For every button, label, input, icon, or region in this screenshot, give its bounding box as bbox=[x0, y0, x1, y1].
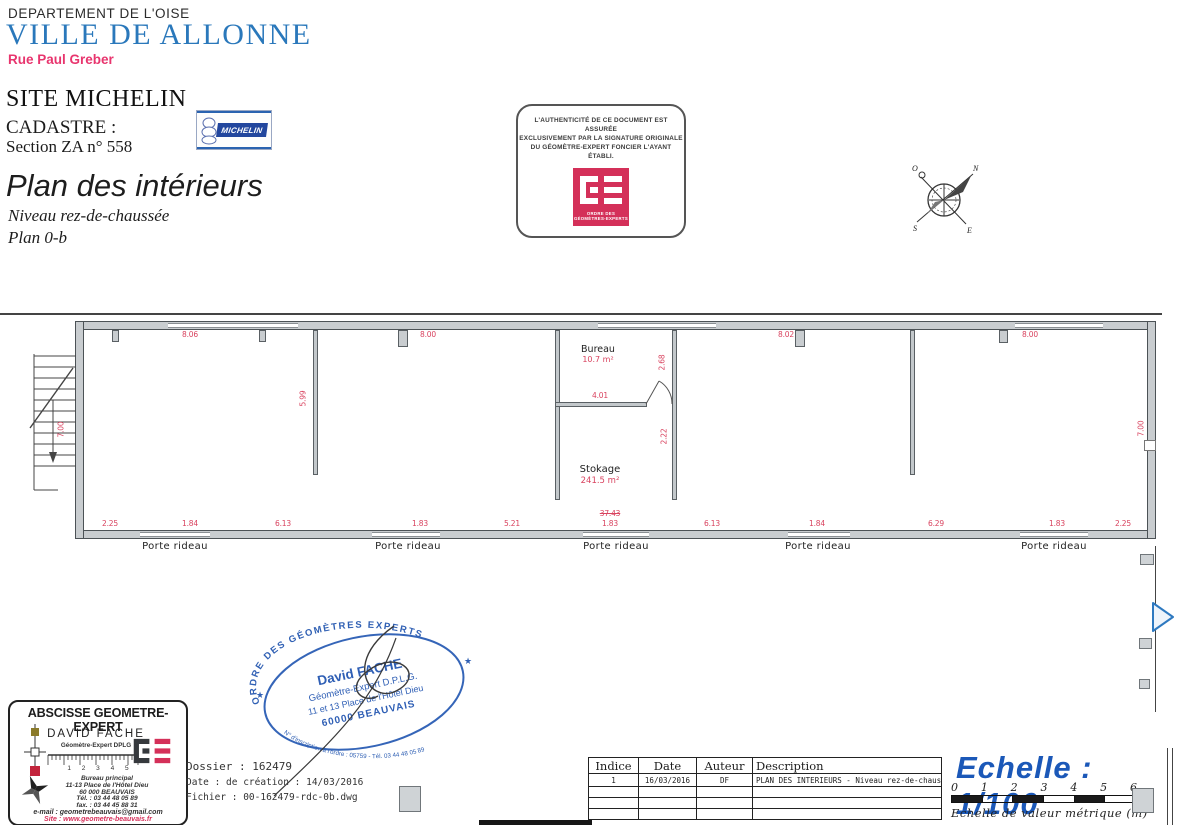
porte-rideau-label: Porte rideau bbox=[576, 541, 656, 552]
col-date: Date bbox=[639, 758, 697, 774]
room-name-bureau: Bureau bbox=[568, 344, 628, 355]
top-wall-opening bbox=[168, 323, 298, 328]
scale-tick: 3 bbox=[1040, 781, 1047, 794]
north-arrow-marker-icon bbox=[1150, 600, 1176, 634]
svg-text:N° d'inscription à l'ordre : 0: N° d'inscription à l'ordre : 05759 - Tél… bbox=[282, 729, 426, 760]
revision-indice: 1 bbox=[589, 774, 639, 787]
staircase-icon bbox=[18, 338, 80, 503]
scan-artifact-bar bbox=[479, 820, 592, 825]
abscisse-email: e-mail : geometrebeauvais@gmail.com bbox=[10, 809, 186, 816]
page-subtitle: Niveau rez-de-chaussée bbox=[8, 206, 169, 226]
dimension-label: 1.83 bbox=[1040, 519, 1074, 528]
dimension-label: 2.22 bbox=[660, 420, 669, 454]
revision-auteur: DF bbox=[697, 774, 753, 787]
bottom-wall-opening bbox=[140, 532, 210, 537]
dossier-number: Dossier : 162479 bbox=[186, 760, 363, 773]
scale-tick: 0 bbox=[951, 781, 958, 794]
oge-caption-line2: GÉOMÈTRES-EXPERTS bbox=[573, 216, 629, 221]
title-block-border bbox=[1167, 748, 1168, 825]
dimension-total-label: 37.43 bbox=[593, 509, 627, 518]
page-title: Plan des intérieurs bbox=[6, 168, 263, 204]
scale-bar bbox=[951, 795, 1137, 803]
dimension-label: 6.29 bbox=[919, 519, 953, 528]
abscisse-name: DAVID FACHE bbox=[46, 728, 146, 740]
bureau-partition-wall bbox=[555, 402, 647, 407]
stamp-arc-bottom-text: N° d'inscription à l'ordre : 05759 - Tél… bbox=[282, 729, 426, 760]
scale-tick: 2 bbox=[1011, 781, 1018, 794]
dimension-label: 6.13 bbox=[695, 519, 729, 528]
revision-table: Indice Date Auteur Description 1 16/03/2… bbox=[588, 757, 942, 820]
dimension-label: 2.68 bbox=[658, 346, 667, 380]
stamp-star-right: ★ bbox=[464, 656, 472, 666]
dimension-label: 8.06 bbox=[173, 330, 207, 339]
file-info-block: Dossier : 162479 Date : de création : 14… bbox=[186, 760, 363, 807]
michelin-wordmark: MICHELIN bbox=[216, 123, 268, 137]
revision-empty-row bbox=[589, 809, 942, 820]
oge-monogram-icon bbox=[578, 174, 624, 206]
plan-sheet: DEPARTEMENT DE L'OISE VILLE DE ALLONNE R… bbox=[0, 0, 1181, 825]
abscisse-crosshair-icon bbox=[22, 722, 48, 778]
bottom-wall-opening bbox=[1020, 532, 1088, 537]
ordre-geometres-experts-logo: ORDRE DES GÉOMÈTRES-EXPERTS bbox=[573, 168, 629, 226]
plan-reference: Plan 0-b bbox=[8, 228, 67, 248]
right-wall-notch bbox=[1144, 440, 1156, 451]
compass-north-label: N bbox=[972, 164, 979, 173]
plan-top-rule bbox=[0, 313, 1162, 315]
revision-empty-row bbox=[589, 787, 942, 798]
abscisse-ruler-numbers: 1 2 3 4 5 bbox=[58, 765, 138, 772]
compass-west-label: O bbox=[912, 164, 918, 173]
stamp-placeholder-box bbox=[399, 786, 421, 812]
dimension-label: 7.00 bbox=[57, 413, 66, 447]
partition-wall bbox=[555, 330, 560, 500]
partition-wall bbox=[910, 330, 915, 475]
dimension-label: 8.02 bbox=[769, 330, 803, 339]
michelin-logo-topbar bbox=[197, 111, 271, 113]
dimension-label: 2.25 bbox=[1106, 519, 1140, 528]
bottom-wall-opening bbox=[788, 532, 850, 537]
revision-row: 1 16/03/2016 DF PLAN DES INTERIEURS - Ni… bbox=[589, 774, 942, 787]
dimension-label: 8.00 bbox=[411, 330, 445, 339]
dimension-label: 1.84 bbox=[173, 519, 207, 528]
abscisse-role: Géomètre-Expert DPLG bbox=[46, 742, 146, 749]
authenticity-line2: EXCLUSIVEMENT PAR LA SIGNATURE ORIGINALE bbox=[518, 134, 684, 143]
authenticity-line1: L'AUTHENTICITÉ DE CE DOCUMENT EST ASSURÉ… bbox=[518, 116, 684, 134]
scale-tick-labels: 0 1 2 3 4 5 6 bbox=[951, 781, 1137, 794]
boundary-marker bbox=[1139, 679, 1150, 689]
dimension-label: 1.83 bbox=[593, 519, 627, 528]
dimension-label: 8.00 bbox=[1013, 330, 1047, 339]
porte-rideau-label: Porte rideau bbox=[368, 541, 448, 552]
creation-date: Date : de création : 14/03/2016 bbox=[186, 777, 363, 788]
scale-tick: 4 bbox=[1070, 781, 1077, 794]
compass-south-label: S bbox=[913, 224, 917, 233]
pillar-stub bbox=[112, 330, 119, 342]
scale-tick: 5 bbox=[1100, 781, 1107, 794]
boundary-marker bbox=[1140, 554, 1154, 565]
revision-date: 16/03/2016 bbox=[639, 774, 697, 787]
dimension-label: 6.13 bbox=[266, 519, 300, 528]
cadastre-value: Section ZA n° 558 bbox=[6, 137, 132, 157]
revision-description: PLAN DES INTERIEURS - Niveau rez-de-chau… bbox=[753, 774, 942, 787]
col-description: Description bbox=[753, 758, 942, 774]
dimension-label: 5.99 bbox=[299, 382, 308, 416]
title-block-border bbox=[1172, 748, 1173, 825]
authenticity-box: L'AUTHENTICITÉ DE CE DOCUMENT EST ASSURÉ… bbox=[516, 104, 686, 238]
partition-wall bbox=[313, 330, 318, 475]
file-name: Fichier : 00-162479-rdc-0b.dwg bbox=[186, 792, 363, 803]
wall-right bbox=[1147, 321, 1156, 539]
bottom-wall-opening bbox=[372, 532, 440, 537]
dimension-label: 4.01 bbox=[583, 391, 617, 400]
top-wall-opening bbox=[598, 323, 716, 328]
abscisse-website: Site : www.geometre-beauvais.fr bbox=[10, 816, 186, 823]
dimension-label: 1.84 bbox=[800, 519, 834, 528]
pillar-stub bbox=[398, 330, 408, 347]
pillar-stub bbox=[259, 330, 266, 342]
porte-rideau-label: Porte rideau bbox=[135, 541, 215, 552]
stair-direction-arrow bbox=[49, 452, 57, 463]
stamp-star-left: ★ bbox=[256, 690, 264, 700]
compass-rose-icon: N O S E bbox=[905, 158, 985, 238]
room-area-stockage: 241.5 m² bbox=[565, 476, 635, 486]
scale-caption: Echelle de valeur métrique (m) bbox=[951, 806, 1148, 820]
dimension-label: 2.25 bbox=[93, 519, 127, 528]
title-block-marker bbox=[1132, 788, 1154, 813]
room-area-bureau: 10.7 m² bbox=[568, 355, 628, 364]
partition-wall bbox=[672, 330, 677, 500]
scale-tick: 1 bbox=[981, 781, 988, 794]
pillar-stub bbox=[999, 330, 1008, 343]
col-auteur: Auteur bbox=[697, 758, 753, 774]
dimension-label: 1.83 bbox=[403, 519, 437, 528]
room-name-stockage: Stokage bbox=[565, 464, 635, 475]
authenticity-line3: DU GÉOMÈTRE-EXPERT FONCIER L'AYANT ÉTABL… bbox=[518, 143, 684, 161]
street-label: Rue Paul Greber bbox=[8, 52, 114, 67]
cadastre-label: CADASTRE : bbox=[6, 117, 116, 139]
compass-east-label: E bbox=[966, 226, 972, 235]
michelin-logo: MICHELIN bbox=[196, 110, 272, 150]
bottom-wall-opening bbox=[583, 532, 649, 537]
abscisse-card: ABSCISSE GEOMETRE-EXPERT DAVID FACHE Géo… bbox=[8, 700, 188, 825]
dimension-label: 5.21 bbox=[495, 519, 529, 528]
revision-header-row: Indice Date Auteur Description bbox=[589, 758, 942, 774]
abscisse-ge-logo-icon bbox=[132, 736, 172, 766]
top-wall-opening bbox=[1015, 323, 1103, 328]
porte-rideau-label: Porte rideau bbox=[778, 541, 858, 552]
porte-rideau-label: Porte rideau bbox=[1014, 541, 1094, 552]
city-title: VILLE DE ALLONNE bbox=[6, 18, 312, 52]
michelin-logo-bottombar bbox=[197, 147, 271, 149]
site-title: SITE MICHELIN bbox=[6, 86, 186, 113]
col-indice: Indice bbox=[589, 758, 639, 774]
boundary-marker bbox=[1139, 638, 1152, 649]
michelin-wordmark-text: MICHELIN bbox=[221, 126, 263, 135]
revision-empty-row bbox=[589, 798, 942, 809]
